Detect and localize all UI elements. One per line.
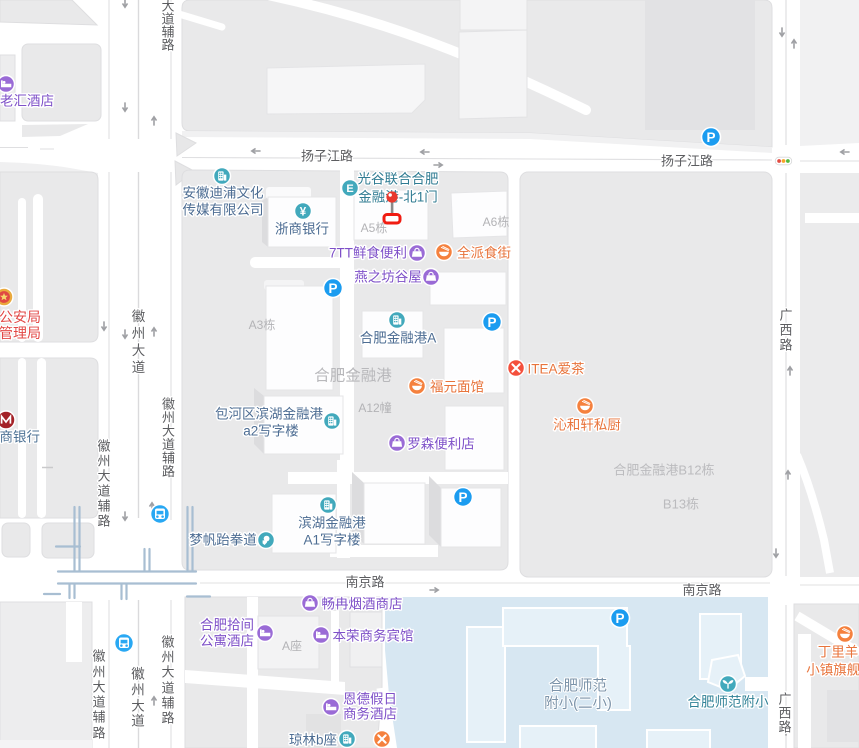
svg-text:大: 大: [92, 680, 105, 695]
svg-text:州: 州: [92, 665, 105, 680]
svg-text:路: 路: [162, 464, 175, 479]
svg-text:辅: 辅: [97, 499, 110, 514]
svg-text:南京路: 南京路: [682, 583, 721, 598]
svg-text:罗森便利店: 罗森便利店: [407, 437, 475, 452]
svg-text:道: 道: [132, 360, 146, 375]
svg-text:A3栋: A3栋: [249, 317, 276, 332]
svg-text:畅冉烟酒商店: 畅冉烟酒商店: [322, 597, 403, 612]
svg-text:传媒有限公司: 传媒有限公司: [183, 203, 264, 218]
svg-text:恩德假日: 恩德假日: [343, 692, 397, 707]
svg-text:A12幢: A12幢: [358, 400, 391, 415]
svg-text:本荣商务宾馆: 本荣商务宾馆: [333, 629, 414, 644]
svg-text:州: 州: [131, 683, 145, 698]
svg-text:道: 道: [92, 695, 105, 710]
svg-text:合肥拾间: 合肥拾间: [200, 618, 254, 633]
svg-text:光谷联合合肥: 光谷联合合肥: [358, 172, 439, 187]
svg-text:商务酒店: 商务酒店: [343, 707, 397, 722]
svg-text:辅: 辅: [92, 710, 105, 725]
svg-text:合肥师范附小: 合肥师范附小: [688, 695, 769, 710]
svg-text:合肥金融港: 合肥金融港: [314, 367, 392, 385]
svg-text:广: 广: [779, 308, 792, 323]
svg-text:A1写字楼: A1写字楼: [303, 533, 360, 548]
svg-text:徽: 徽: [161, 635, 174, 650]
svg-text:全派食街: 全派食街: [457, 245, 511, 261]
svg-text:小镇旗舰店: 小镇旗舰店: [806, 663, 859, 678]
svg-text:西: 西: [779, 323, 792, 338]
svg-text:公寓酒店: 公寓酒店: [200, 633, 254, 649]
svg-text:路: 路: [92, 726, 105, 741]
svg-text:路: 路: [779, 338, 792, 353]
svg-text:浙商银行: 浙商银行: [275, 222, 329, 237]
svg-text:安徽迪浦文化: 安徽迪浦文化: [183, 186, 264, 201]
svg-text:B13栋: B13栋: [663, 497, 699, 512]
svg-text:扬子江路: 扬子江路: [661, 154, 713, 169]
svg-text:路: 路: [97, 514, 110, 529]
svg-text:扬子江路: 扬子江路: [301, 149, 353, 164]
svg-text:大: 大: [132, 343, 146, 358]
svg-text:道: 道: [131, 714, 145, 729]
svg-text:招商银行: 招商银行: [0, 430, 40, 445]
svg-text:州: 州: [161, 650, 174, 665]
svg-text:福元面馆: 福元面馆: [430, 380, 484, 395]
svg-text:金融港-北1门: 金融港-北1门: [358, 190, 438, 205]
svg-text:路: 路: [161, 711, 174, 726]
svg-text:琼林b座: 琼林b座: [289, 733, 337, 748]
svg-text:包河区滨湖金融港: 包河区滨湖金融港: [215, 407, 323, 422]
svg-text:a2写字楼: a2写字楼: [243, 424, 299, 439]
svg-text:道: 道: [97, 484, 110, 499]
svg-text:滨湖金融港: 滨湖金融港: [298, 516, 366, 531]
svg-text:路: 路: [161, 38, 174, 53]
svg-text:州: 州: [97, 454, 110, 469]
svg-text:南京路: 南京路: [345, 575, 384, 590]
svg-text:ITEA爱茶: ITEA爱茶: [527, 362, 585, 377]
svg-text:徽: 徽: [132, 309, 146, 324]
svg-text:燕之坊谷屋: 燕之坊谷屋: [354, 270, 422, 285]
svg-text:合肥师范: 合肥师范: [549, 678, 607, 695]
svg-text:道: 道: [161, 681, 174, 696]
svg-text:交通管理局: 交通管理局: [0, 325, 41, 341]
svg-text:老汇酒店: 老汇酒店: [0, 94, 54, 109]
svg-text:丁里羊: 丁里羊: [818, 645, 859, 660]
svg-text:徽: 徽: [131, 667, 145, 682]
svg-text:徽: 徽: [92, 649, 105, 664]
svg-text:大: 大: [131, 699, 145, 714]
svg-text:合肥金融港A: 合肥金融港A: [360, 331, 437, 346]
svg-text:辅: 辅: [161, 696, 174, 711]
svg-text:A座: A座: [282, 638, 302, 653]
svg-text:梦帆跆拳道: 梦帆跆拳道: [189, 533, 257, 548]
svg-text:附小(二小): 附小(二小): [544, 695, 612, 712]
svg-text:合肥金融港B12栋: 合肥金融港B12栋: [613, 463, 714, 478]
svg-text:州: 州: [132, 326, 146, 341]
svg-text:市公安局: 市公安局: [0, 309, 41, 325]
svg-text:大: 大: [97, 469, 110, 484]
svg-text:广: 广: [778, 692, 791, 707]
svg-text:大: 大: [161, 665, 174, 680]
svg-text:沁和轩私厨: 沁和轩私厨: [553, 418, 621, 433]
svg-text:A6栋: A6栋: [483, 214, 510, 229]
svg-text:西: 西: [778, 706, 791, 721]
svg-text:徽: 徽: [97, 439, 110, 454]
svg-text:7TT鲜食便利: 7TT鲜食便利: [329, 245, 407, 261]
svg-text:路: 路: [778, 720, 791, 735]
